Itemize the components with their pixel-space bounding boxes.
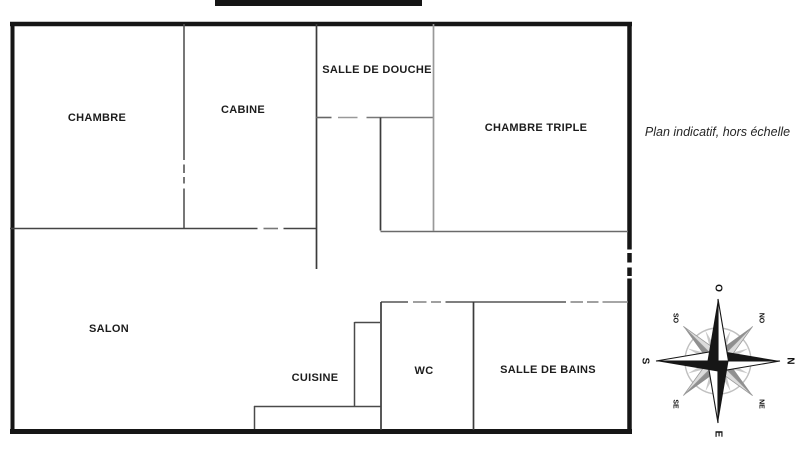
- room-label-wc: WC: [415, 365, 434, 377]
- compass-rose-icon: N E S O NE SE SO NO: [633, 276, 800, 446]
- compass-label-s: S: [640, 358, 651, 365]
- room-label-cabine: CABINE: [221, 104, 265, 116]
- compass-label-se: SE: [672, 399, 679, 409]
- room-label-chambre-triple: CHAMBRE TRIPLE: [485, 122, 588, 134]
- room-label-cuisine: CUISINE: [292, 372, 339, 384]
- compass-label-so: SO: [672, 313, 679, 324]
- room-label-chambre: CHAMBRE: [68, 112, 126, 124]
- compass-label-no: NO: [758, 313, 765, 324]
- room-label-salon: SALON: [89, 323, 129, 335]
- room-label-salle-de-douche: SALLE DE DOUCHE: [322, 64, 432, 76]
- scale-note: Plan indicatif, hors échelle: [630, 125, 800, 139]
- compass-label-o: O: [713, 284, 724, 292]
- compass-label-n: N: [785, 357, 796, 364]
- compass-label-e: E: [713, 431, 724, 438]
- compass-label-ne: NE: [758, 399, 765, 409]
- room-label-salle-de-bains: SALLE DE BAINS: [500, 364, 596, 376]
- floorplan-page: CHAMBRE CABINE SALLE DE DOUCHE CHAMBRE T…: [0, 0, 800, 450]
